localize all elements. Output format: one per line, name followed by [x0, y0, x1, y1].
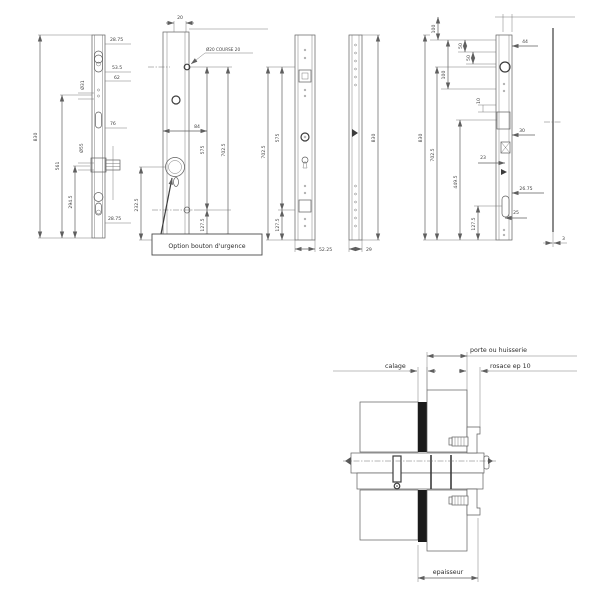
course-label: Ø20 COURSE 20 — [191, 47, 253, 64]
svg-text:26.75: 26.75 — [519, 186, 532, 192]
svg-text:52.25: 52.25 — [319, 247, 332, 253]
svg-text:830: 830 — [418, 134, 424, 143]
view-faceplate-a: 830 561 294.5 Ø31 Ø55 28.75 — [33, 35, 131, 238]
svg-text:575: 575 — [275, 134, 281, 143]
svg-text:20: 20 — [177, 15, 183, 21]
svg-text:calage: calage — [385, 363, 406, 370]
technical-drawing-page: 830 561 294.5 Ø31 Ø55 28.75 — [0, 0, 600, 600]
svg-text:830: 830 — [33, 133, 39, 142]
svg-text:100: 100 — [431, 25, 437, 34]
view-faceplate-b: 702.5 575 127.5 52.25 — [261, 35, 332, 253]
svg-text:561: 561 — [55, 162, 61, 171]
svg-text:127.5: 127.5 — [275, 218, 281, 231]
dim-b-width: 52.25 — [295, 240, 332, 253]
svg-text:Option bouton d'urgence: Option bouton d'urgence — [168, 243, 245, 250]
svg-text:127.5: 127.5 — [200, 218, 206, 231]
dim-b-left: 702.5 575 127.5 — [261, 67, 295, 240]
svg-text:62: 62 — [114, 75, 120, 81]
dim-case-232-5: 232.5 — [134, 167, 166, 240]
svg-text:100: 100 — [441, 71, 447, 80]
label-porte: porte ou huisserie — [427, 347, 577, 427]
svg-text:23: 23 — [480, 155, 486, 161]
svg-text:Ø20 COURSE 20: Ø20 COURSE 20 — [206, 47, 240, 52]
svg-text:702.5: 702.5 — [221, 143, 227, 156]
svg-text:702.5: 702.5 — [430, 148, 436, 161]
svg-text:50: 50 — [458, 43, 464, 49]
wall-block-top — [360, 402, 418, 452]
view-strip: 830 29 — [349, 35, 380, 253]
view-side-plate: 3 — [543, 28, 567, 247]
svg-text:Ø31: Ø31 — [79, 80, 86, 90]
svg-text:28.75: 28.75 — [108, 216, 121, 222]
svg-text:575: 575 — [200, 146, 206, 155]
dim-a-830: 830 — [33, 35, 92, 238]
svg-text:28.75: 28.75 — [110, 37, 123, 43]
svg-text:294.5: 294.5 — [68, 195, 74, 208]
dim-strip-29: 29 — [349, 240, 372, 253]
label-calage: calage — [333, 363, 436, 402]
dim-a-hole-top: Ø31 — [78, 80, 94, 99]
view-lock-case: 20 Ø20 COURSE 20 84 — [134, 15, 268, 255]
svg-text:25: 25 — [513, 210, 519, 216]
dim-a-right: 28.75 53.5 62 76 28.75 — [105, 37, 131, 223]
svg-text:44: 44 — [522, 39, 528, 45]
dim-case-rights: 575 127.5 702.5 — [189, 67, 232, 240]
svg-text:76: 76 — [110, 121, 116, 127]
dim-c-left: 830 702.5 449.5 127.5 — [418, 35, 502, 240]
svg-text:epaisseur: epaisseur — [433, 569, 464, 576]
svg-text:30: 30 — [519, 128, 525, 134]
view-faceplate-c: 100 50 50 100 10 44 30 23 26.75 — [418, 14, 575, 240]
svg-text:84: 84 — [194, 124, 200, 130]
svg-text:127.5: 127.5 — [471, 217, 477, 230]
svg-text:830: 830 — [371, 134, 377, 143]
svg-text:29: 29 — [366, 247, 372, 253]
svg-text:53.5: 53.5 — [112, 65, 122, 71]
svg-text:50: 50 — [466, 55, 472, 61]
svg-text:449.5: 449.5 — [453, 175, 459, 188]
screw-bottom — [449, 496, 468, 505]
svg-text:rosace ep 10: rosace ep 10 — [490, 363, 531, 370]
keyway — [393, 456, 401, 482]
svg-text:Ø55: Ø55 — [78, 143, 85, 153]
svg-text:porte ou huisserie: porte ou huisserie — [470, 347, 527, 354]
svg-text:10: 10 — [476, 98, 482, 104]
dim-side-3: 3 — [543, 232, 567, 247]
dim-strip-830: 830 — [362, 35, 380, 240]
svg-text:702.5: 702.5 — [261, 145, 267, 158]
svg-text:3: 3 — [562, 236, 565, 242]
drawing-canvas: 830 561 294.5 Ø31 Ø55 28.75 — [0, 0, 600, 600]
wall-block-bottom — [360, 490, 418, 540]
dim-a-294-5: 294.5 — [68, 166, 90, 238]
svg-text:232.5: 232.5 — [134, 198, 140, 211]
calage-shim-bottom — [418, 490, 427, 542]
screw-top — [449, 437, 468, 446]
cross-section: porte ou huisserie calage rosace ep 10 e… — [333, 347, 577, 582]
calage-shim-top — [418, 402, 427, 452]
dim-a-561: 561 — [55, 95, 92, 238]
cylinder — [343, 453, 497, 489]
label-rosace: rosace ep 10 — [459, 363, 577, 428]
dim-case-20: 20 — [166, 15, 268, 32]
